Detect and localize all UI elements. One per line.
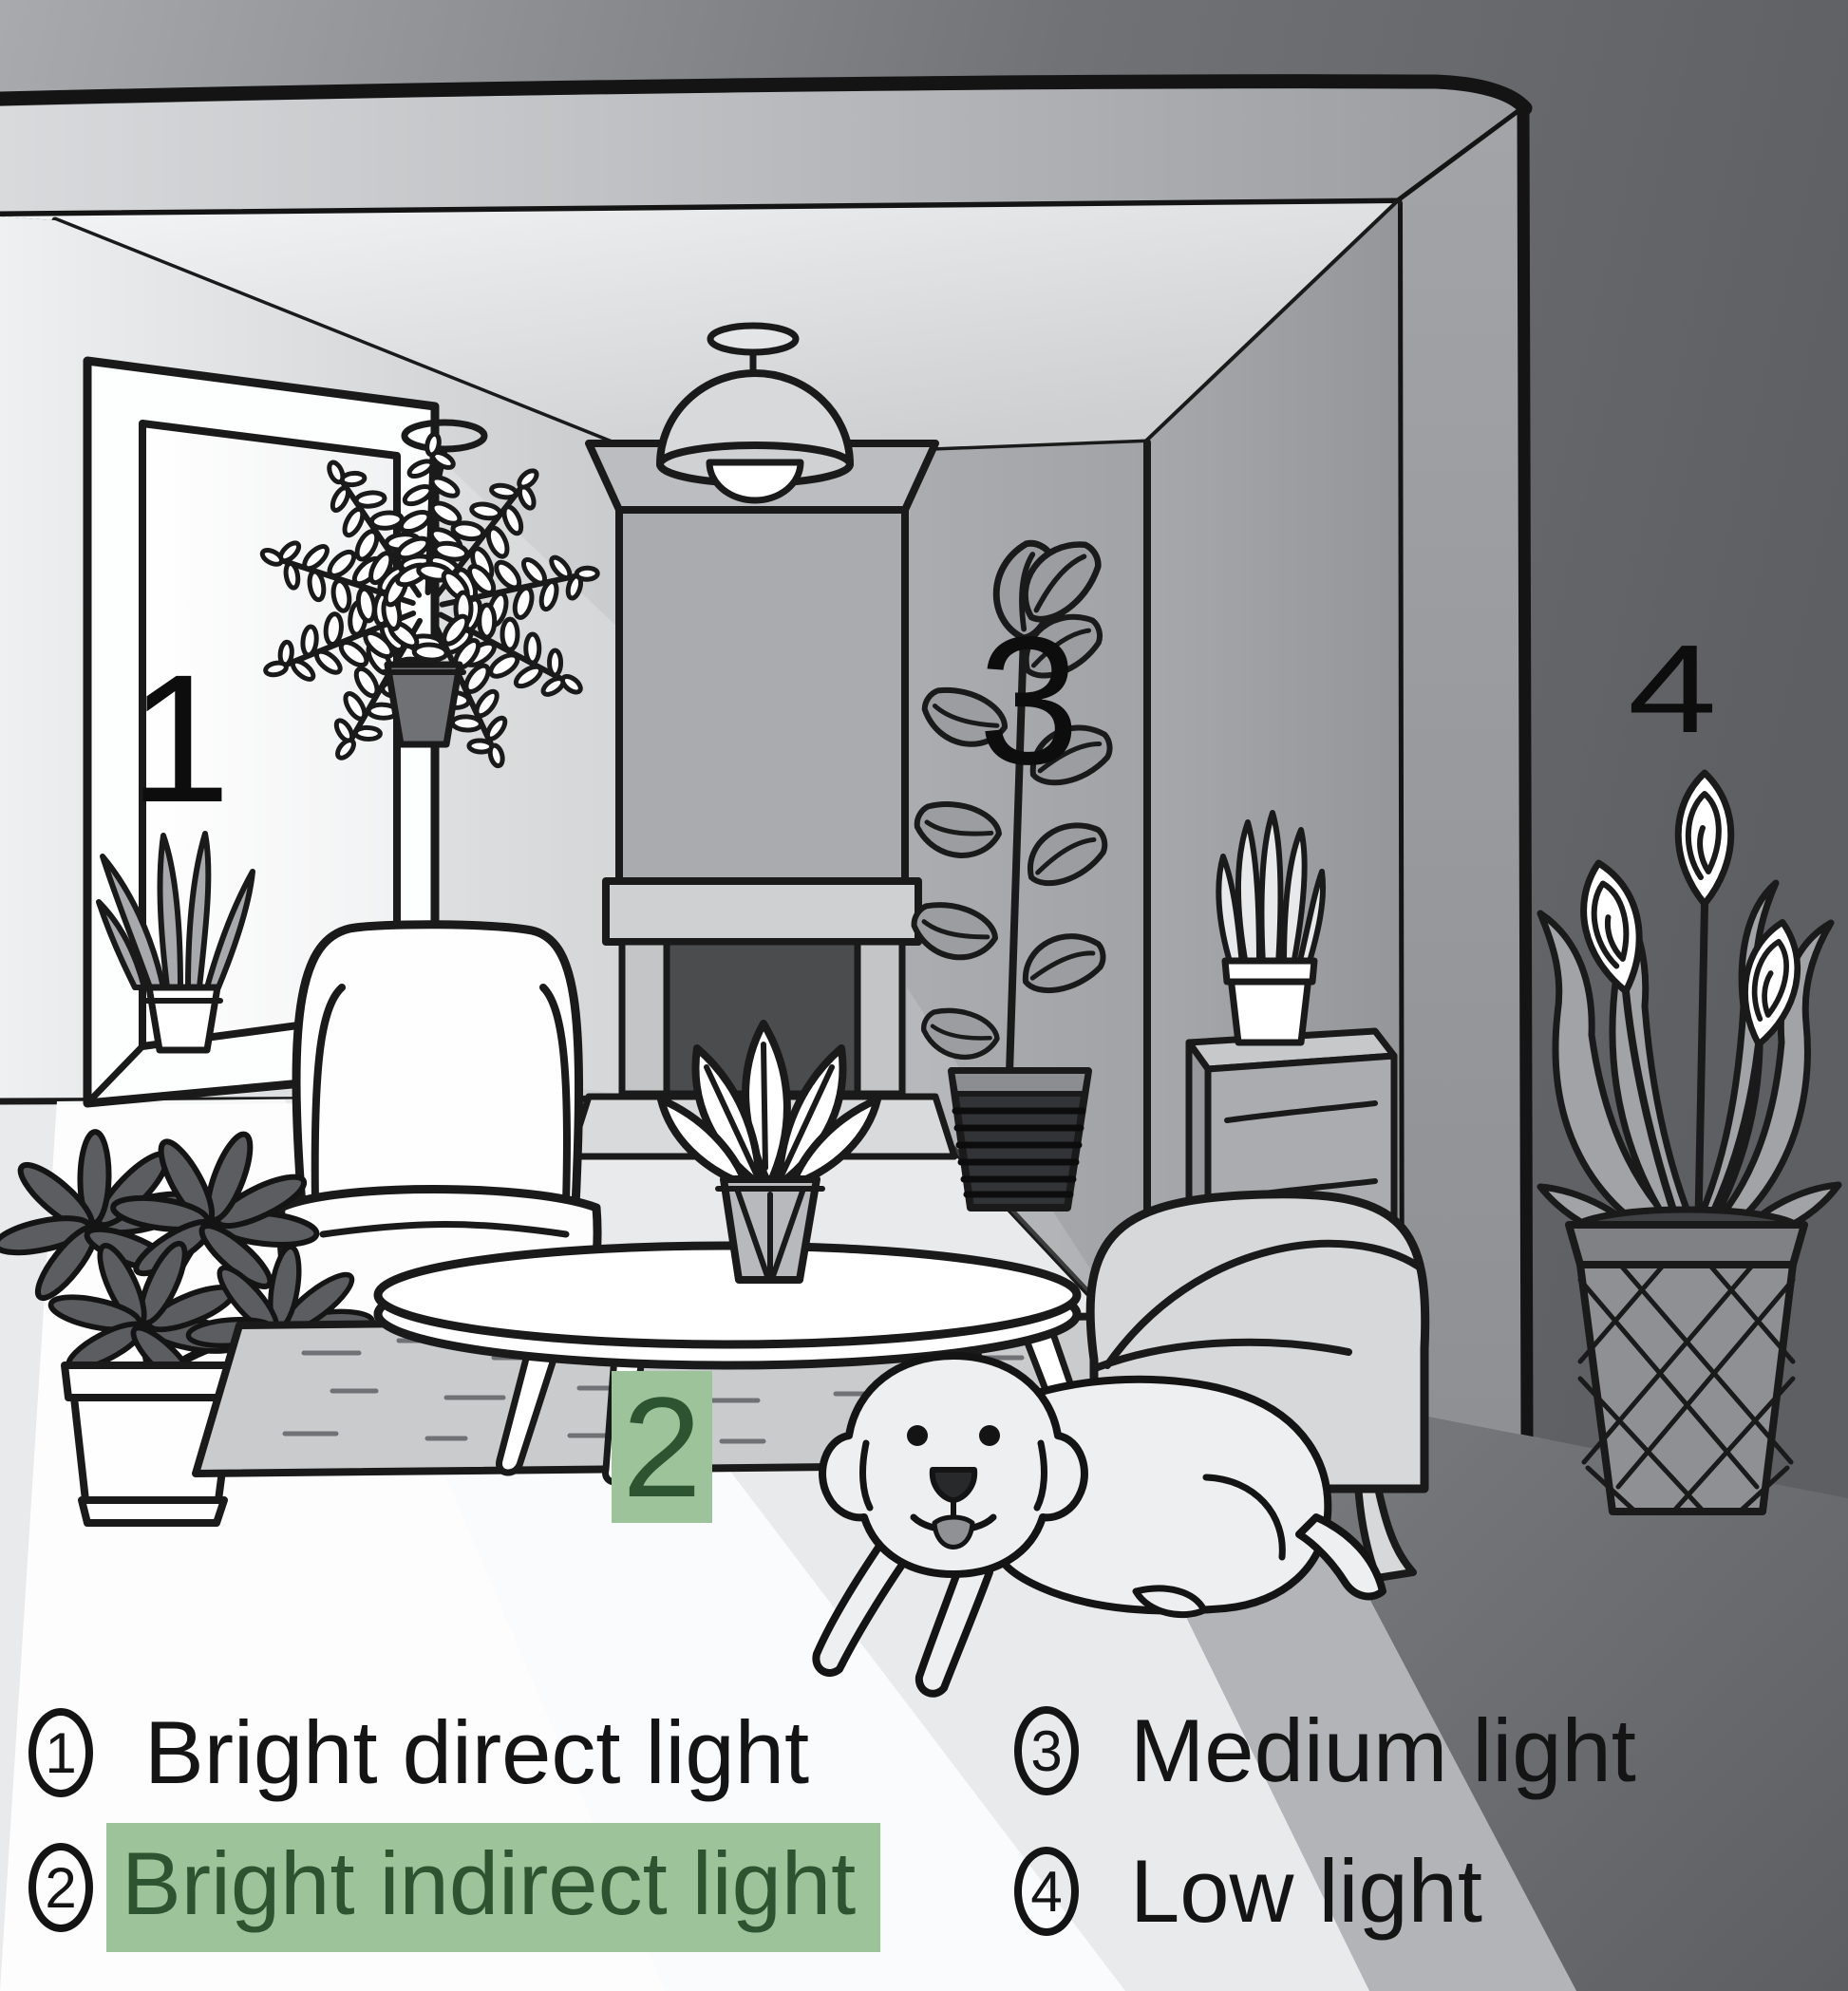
legend-label-highlighted: Bright indirect light	[106, 1823, 880, 1952]
zone-label-3: 3	[978, 610, 1080, 792]
frame-top-beam	[0, 87, 1523, 216]
circled-number-2-icon: 2	[28, 1843, 93, 1932]
legend-label: Bright direct light	[106, 1701, 809, 1804]
zone-label-1: 1	[129, 648, 231, 830]
houseplant-light-levels-illustration: 1 2 3 4 1 Bright direct light 2 Bright i…	[0, 0, 1848, 1991]
zone-label-2-highlighted: 2	[612, 1371, 712, 1523]
circled-number-3-icon: 3	[1014, 1706, 1079, 1795]
dog-tongue	[934, 1517, 972, 1548]
zone-label-4: 4	[1628, 627, 1717, 752]
legend-item-low-light: 4 Low light	[1014, 1840, 1482, 1943]
room-illustration	[0, 0, 1848, 1991]
circled-number-4-icon: 4	[1014, 1847, 1079, 1936]
frame-right-beam	[1398, 110, 1527, 1436]
legend-label: Low light	[1092, 1840, 1482, 1943]
legend-item-bright-indirect-light: 2 Bright indirect light	[28, 1823, 880, 1952]
legend-item-medium-light: 3 Medium light	[1014, 1700, 1636, 1802]
legend-item-bright-direct-light: 1 Bright direct light	[28, 1701, 809, 1804]
circled-number-1-icon: 1	[28, 1708, 93, 1797]
legend-label: Medium light	[1092, 1700, 1636, 1802]
